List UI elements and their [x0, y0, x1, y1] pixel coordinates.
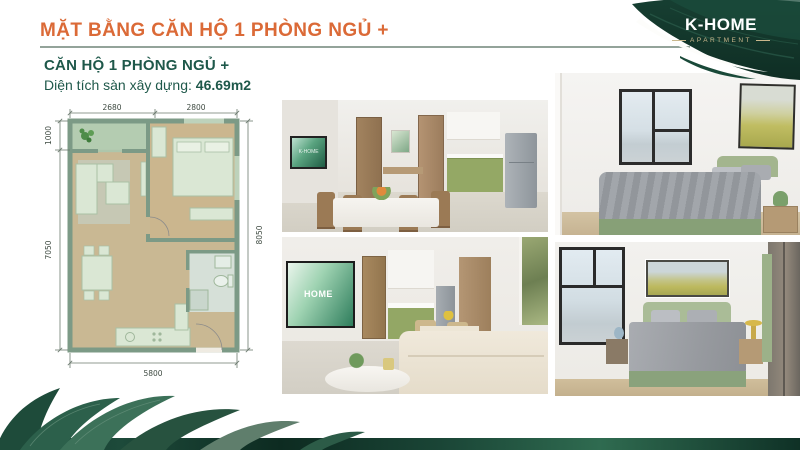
unit-area-label: Diện tích sàn xây dựng: [44, 77, 192, 93]
bed-base [599, 219, 761, 235]
pillow [177, 142, 201, 152]
bedroom-wall [146, 123, 150, 217]
photo-bedroom-master [555, 242, 800, 396]
window-frame-bar [562, 285, 622, 288]
photo-bedroom-window [555, 73, 800, 235]
shower [190, 290, 208, 310]
tv-screen: HOME [286, 261, 355, 329]
console-table [383, 167, 423, 174]
bathroom-door-gap [186, 270, 190, 288]
bathroom-sink [215, 256, 231, 268]
balcony-wall [72, 149, 98, 153]
flower-vase [442, 311, 455, 325]
chair [99, 246, 109, 255]
dimension-top: 2680 2800 [68, 103, 239, 118]
bed-base [629, 371, 747, 386]
dining-table [333, 198, 439, 227]
window-frame-bar [652, 129, 689, 132]
kitchen-upper-cabinets [447, 112, 500, 140]
dimension-label-left-bottom: 7050 [44, 240, 53, 259]
landscape-painting [646, 260, 729, 297]
unit-area-value: 46.69m2 [196, 77, 251, 93]
leaves-decoration [0, 382, 400, 450]
bedroom-window-plan [184, 119, 224, 124]
photo-dining-kitchen: K-HOME [282, 100, 548, 232]
tv-screen: K-HOME [290, 136, 327, 169]
toilet-tank [228, 275, 233, 287]
wardrobe [768, 242, 800, 396]
chair [84, 246, 94, 255]
dimension-label-bottom: 5800 [143, 369, 162, 378]
floor-plan: 2680 2800 1000 7050 8050 [38, 100, 268, 392]
wardrobe-shelf [762, 254, 772, 362]
sofa [399, 331, 548, 394]
wall-edge [555, 73, 562, 235]
kitchen-lower-cabinets [447, 158, 503, 192]
dimension-right: 8050 [240, 119, 264, 352]
window-frame-bar [652, 92, 655, 162]
window-frame-bar [593, 250, 596, 285]
dimension-label-right: 8050 [255, 225, 264, 244]
entry-door-gap [196, 348, 222, 353]
dimension-left: 1000 7050 [44, 119, 70, 352]
photo-living-room: HOME [282, 237, 548, 394]
coffee-table [106, 182, 129, 204]
flower-vase [372, 187, 391, 200]
toilet [214, 276, 228, 287]
logo-name: K-HOME [660, 15, 782, 35]
window [619, 89, 693, 165]
chair [99, 291, 109, 300]
brand-logo: K-HOME APARTMENT [660, 15, 782, 44]
balcony-wall [122, 149, 148, 153]
nightstand [763, 206, 797, 234]
nightstand [739, 339, 764, 364]
bedroom-cabinet [152, 127, 166, 157]
tv-console [141, 162, 146, 196]
bedroom-side-window-plan [235, 156, 240, 200]
logo-subtitle: APARTMENT [690, 37, 752, 44]
dimension-label-left-top: 1000 [44, 126, 53, 145]
logo-dash-right [756, 40, 770, 41]
title-underline [40, 46, 690, 48]
dimension-label-top-right: 2800 [186, 103, 205, 112]
potted-plant [346, 353, 367, 372]
bathroom-wall-top [186, 250, 235, 254]
candle [383, 358, 394, 371]
unit-name: CĂN HỘ 1 PHÒNG NGỦ + [44, 57, 229, 74]
unit-area: Diện tích sàn xây dựng: 46.69m2 [44, 77, 251, 93]
kitchen-upper-cabinets [388, 250, 433, 289]
table-lamp [751, 322, 756, 339]
table-lamp [614, 327, 624, 339]
bedroom-wall-bottom [146, 238, 237, 242]
door [418, 115, 445, 202]
bed-duvet [629, 322, 747, 374]
sofa [76, 164, 97, 214]
dimension-bottom: 5800 [68, 353, 239, 378]
brochure-slide: MẶT BẰNG CĂN HỘ 1 PHÒNG NGỦ + CĂN HỘ 1 P… [0, 0, 800, 450]
bed-duvet [599, 172, 761, 222]
sofa-chaise [97, 164, 113, 182]
dining-table [82, 256, 112, 290]
table-lamp [773, 191, 788, 206]
balcony-slider [98, 150, 122, 152]
chair [84, 291, 94, 300]
logo-dash-left [672, 40, 686, 41]
bedroom-bench [190, 208, 233, 220]
kitchen-counter [116, 328, 190, 346]
wall-art [519, 237, 548, 325]
wall-art [391, 130, 410, 152]
page-title: MẶT BẰNG CĂN HỘ 1 PHÒNG NGỦ + [40, 20, 389, 42]
door [362, 256, 386, 339]
dimension-label-top-left: 2680 [102, 103, 121, 112]
leaf [200, 421, 300, 450]
logo-subtitle-row: APARTMENT [660, 37, 782, 44]
nightstand [606, 339, 628, 364]
leaf [300, 432, 365, 450]
pillow [205, 142, 229, 152]
refrigerator [505, 133, 537, 208]
landscape-painting [738, 84, 796, 150]
